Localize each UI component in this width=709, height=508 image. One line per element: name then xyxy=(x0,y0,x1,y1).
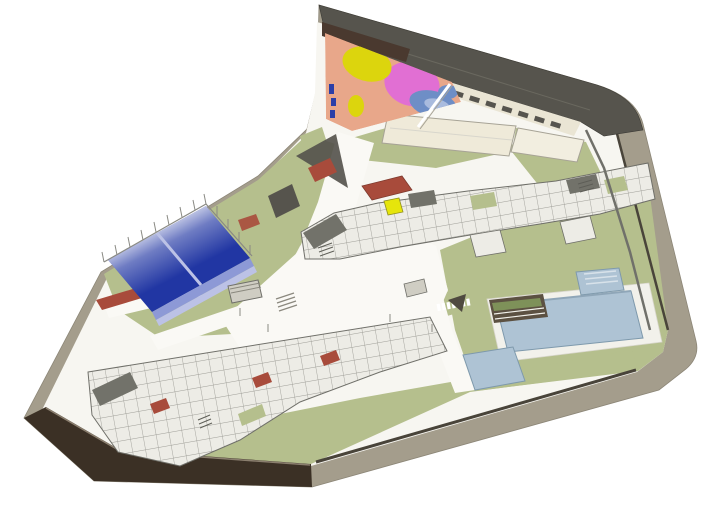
site-rendering xyxy=(0,0,709,508)
central-annex-1 xyxy=(470,230,506,257)
playground-yellow-blob-small xyxy=(348,95,364,117)
play-equipment-1 xyxy=(329,84,334,94)
play-equipment-3 xyxy=(330,110,335,118)
site-rendering-canvas xyxy=(0,0,709,508)
play-equipment-2 xyxy=(331,98,336,106)
